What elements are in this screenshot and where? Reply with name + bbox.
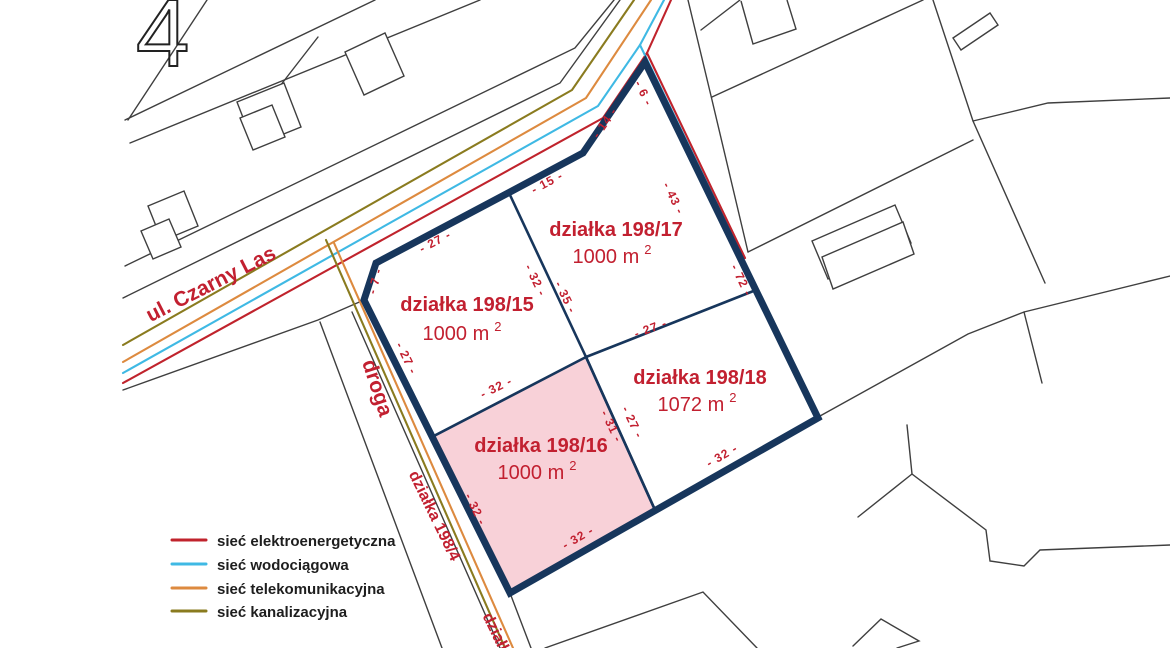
parcel-label-198-17: działka 198/17 1000 m2 — [549, 219, 682, 268]
parcel-line — [853, 619, 919, 648]
cadastral-map: - 14 - - 6 - - 15 - - 27 - - 7 - - 27 - … — [0, 0, 1170, 648]
parcel-line — [701, 0, 740, 30]
parcel-name: działka 198/15 — [400, 294, 533, 316]
legend-label-water: sieć wodociągowa — [217, 557, 349, 574]
parcel-name: działka 198/16 — [474, 435, 607, 457]
parcel-line — [933, 0, 1045, 283]
parcel-label-198-18: działka 198/18 1072 m2 — [633, 367, 766, 416]
map-sheet-number: 4 — [136, 0, 189, 87]
parcel-line — [712, 0, 923, 97]
access-road-right-edge — [510, 593, 531, 648]
dimension-label: - 7 - — [365, 266, 385, 295]
building — [741, 0, 796, 44]
parcel-area: 1072 m2 — [658, 390, 737, 416]
electric-line — [123, 0, 671, 383]
parcel-line — [858, 474, 912, 517]
building — [345, 33, 404, 95]
parcel-line — [907, 425, 1170, 566]
legend: sieć elektroenergetyczna sieć wodociągow… — [172, 533, 396, 621]
parcel-label-198-15: działka 198/15 1000 m2 — [400, 294, 533, 345]
parcel-line — [545, 592, 757, 648]
dimension-label: - 35 - — [552, 279, 579, 316]
parcel-name: działka 198/18 — [633, 367, 766, 389]
parcel-line — [1024, 312, 1042, 383]
parcel-area: 1000 m2 — [573, 242, 652, 268]
parcel-line — [820, 276, 1170, 416]
building — [953, 13, 998, 50]
legend-label-sewer: sieć kanalizacyjna — [217, 604, 348, 621]
dimension-label: - 43 - — [660, 180, 687, 217]
parcel-line — [973, 98, 1170, 121]
parcel-area: 1000 m2 — [423, 319, 502, 345]
legend-label-electric: sieć elektroenergetyczna — [217, 533, 396, 550]
map-canvas: - 14 - - 6 - - 15 - - 27 - - 7 - - 27 - … — [0, 0, 1170, 648]
parcel-name: działka 198/17 — [549, 219, 682, 241]
legend-label-telecom: sieć telekomunikacyjna — [217, 581, 385, 598]
dimension-label: - 27 - — [632, 316, 669, 341]
parcel-border-17-18 — [586, 290, 756, 357]
